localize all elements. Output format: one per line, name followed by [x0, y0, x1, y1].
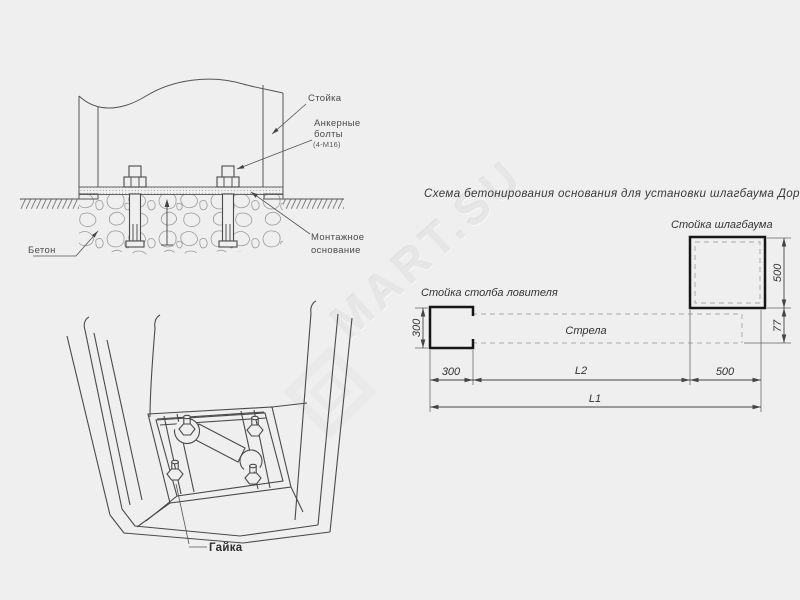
catcher-post-outline	[430, 307, 473, 348]
boom-label: Стрела	[565, 325, 606, 337]
anchor-bolts-spec-label: (4-М16)	[313, 140, 341, 149]
post-section	[79, 79, 283, 199]
catcher-post-label: Стойка столба ловителя	[421, 287, 558, 299]
dim-total-length: L1	[430, 393, 761, 409]
mounting-base-label-line1: Монтажное	[311, 232, 364, 243]
dim-barrier-height-label: 500	[772, 263, 784, 282]
post-label: Стойка	[308, 93, 342, 104]
plan-view: Схема бетонирования основания для устано…	[411, 187, 800, 412]
dim-catcher-height-label: 300	[411, 318, 423, 337]
post-back-edge-hook	[155, 315, 160, 328]
dim-catcher-width-label: 300	[442, 366, 461, 378]
dim-catcher-height: 300	[411, 308, 428, 348]
dim-barrier-width-label: 500	[716, 366, 735, 378]
barrier-post-label: Стойка шлагбаума	[671, 219, 773, 231]
service-window	[137, 403, 307, 527]
concrete-mass	[79, 194, 283, 254]
dim-span-label: L2	[575, 365, 587, 377]
concrete-label: Бетон	[28, 245, 56, 256]
anchor-bolts-label-line2: болты	[314, 129, 343, 140]
anchor-bolts-label-line1: Анкерные	[314, 118, 361, 129]
barrier-post-outline	[690, 237, 765, 308]
post-left-wall	[67, 317, 142, 515]
perspective-view: Гайка	[67, 301, 352, 554]
plan-title: Схема бетонирования основания для устано…	[424, 187, 800, 200]
mounting-base-label-line2: основание	[311, 245, 361, 256]
post-back-edge	[150, 328, 155, 417]
post-bottom	[110, 509, 330, 543]
drawing-sheet: MART.SU	[0, 0, 800, 600]
elevation-view: Стойка Анкерные болты (4-М16) Бетон Монт…	[20, 79, 364, 256]
dim-total-length-label: L1	[589, 393, 601, 405]
dim-boom-height-label: 77	[772, 319, 784, 332]
post-right-wall	[295, 301, 352, 532]
nut-label: Гайка	[209, 542, 243, 554]
